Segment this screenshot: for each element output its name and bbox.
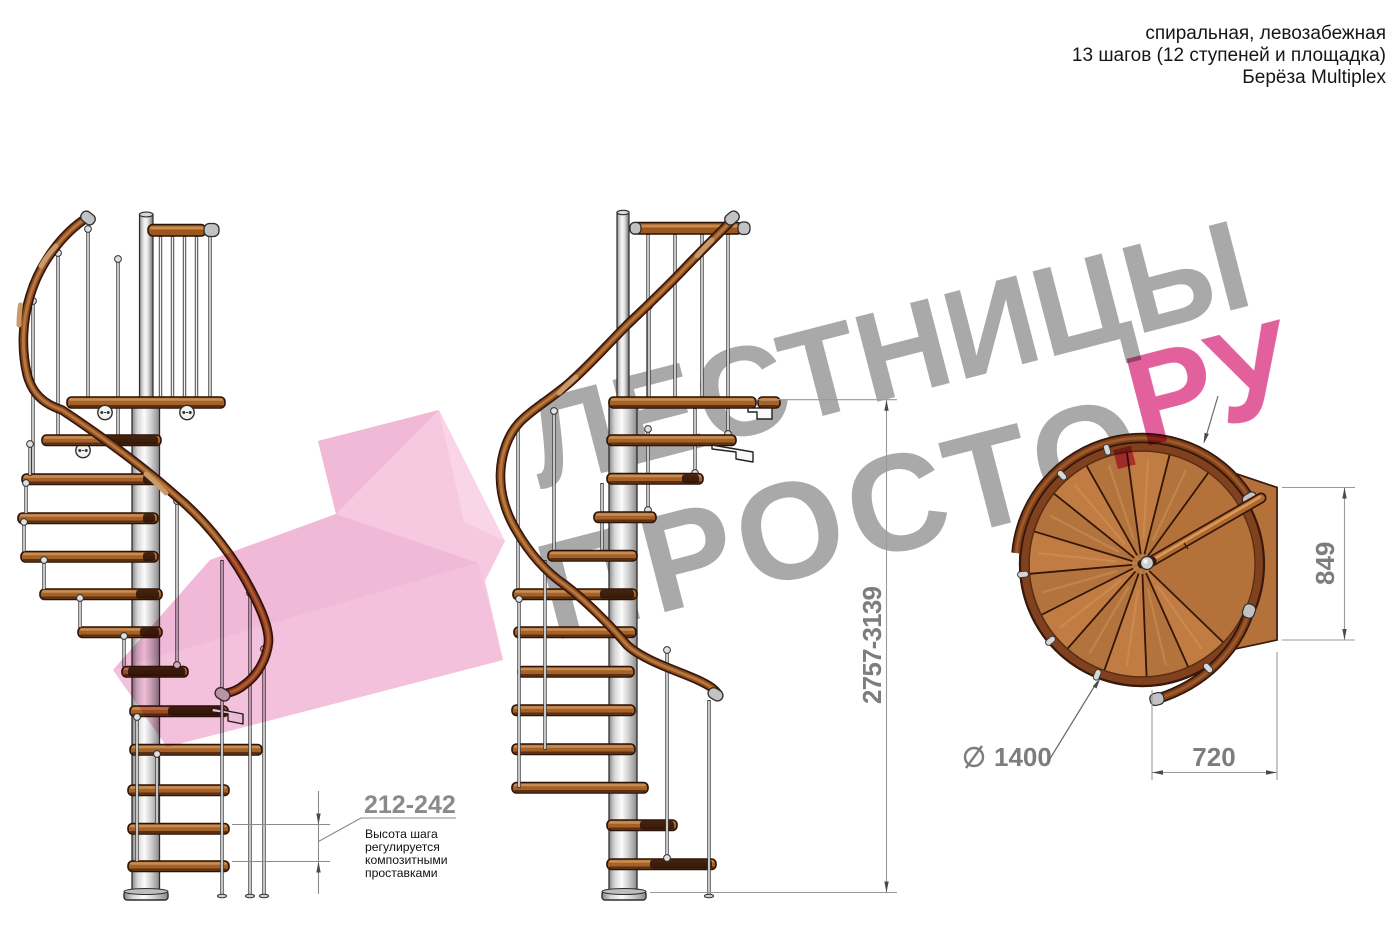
svg-text:1400: 1400 <box>994 742 1052 772</box>
svg-text:849: 849 <box>1310 542 1340 585</box>
svg-text:720: 720 <box>1192 742 1235 772</box>
svg-text:Высота шагарегулируетсякомпози: Высота шагарегулируетсякомпозитнымипрост… <box>365 827 448 880</box>
svg-text:2757-3139: 2757-3139 <box>857 587 887 704</box>
svg-text:212-242: 212-242 <box>364 791 456 819</box>
